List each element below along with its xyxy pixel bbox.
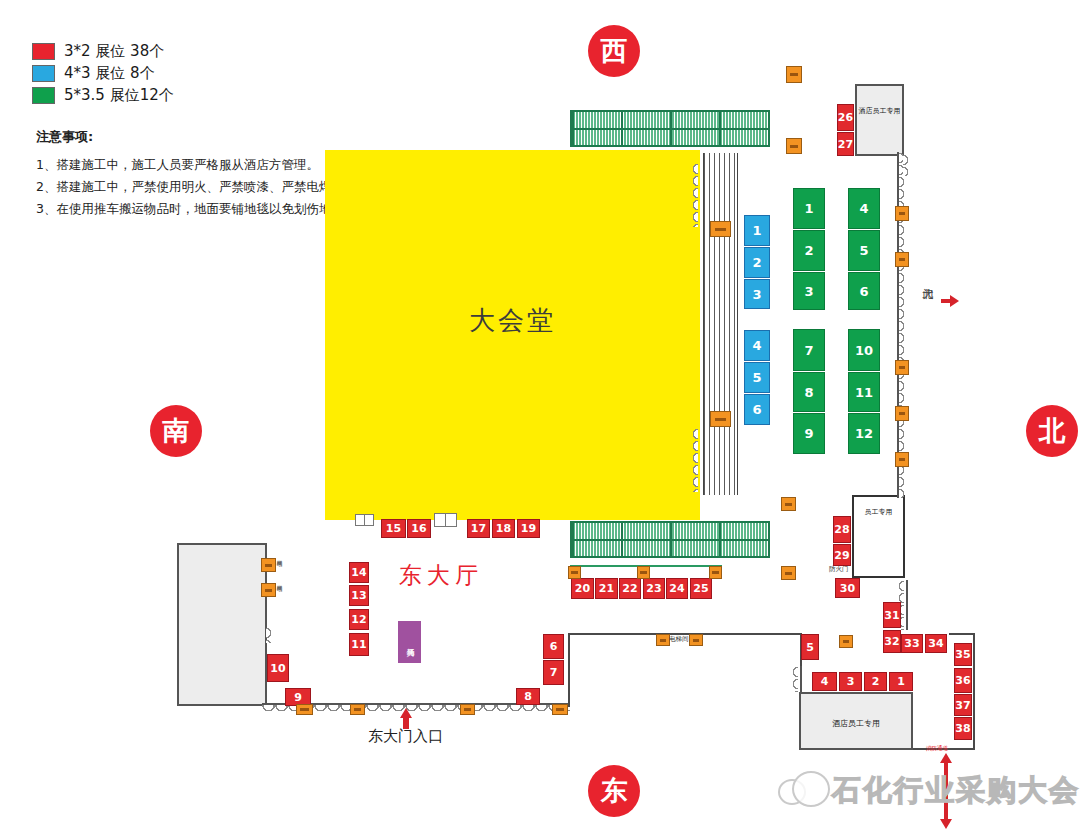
compass-north: 北 bbox=[1026, 405, 1078, 457]
cloud-icon bbox=[792, 771, 830, 807]
orange-marker-14 bbox=[709, 566, 722, 579]
booth-red-26: 26 bbox=[837, 104, 854, 131]
booth-red-5: 5 bbox=[801, 634, 819, 660]
booth-red-15: 15 bbox=[381, 519, 406, 538]
orange-marker-23 bbox=[552, 704, 568, 715]
booth-red-24: 24 bbox=[666, 578, 688, 599]
booth-red-16: 16 bbox=[407, 519, 431, 538]
booth-blue-4: 4 bbox=[744, 330, 770, 361]
main-hall-label: 大会堂 bbox=[469, 303, 556, 338]
booth-red-4: 4 bbox=[812, 672, 837, 691]
booth-green-1: 1 bbox=[793, 188, 825, 229]
orange-marker-1 bbox=[786, 66, 802, 83]
booth-red-13: 13 bbox=[349, 585, 369, 606]
hotel-staff-room-bottom: 酒店员工专用 bbox=[799, 692, 913, 750]
booth-red-25: 25 bbox=[690, 578, 712, 599]
booth-red-36: 36 bbox=[954, 668, 972, 693]
booth-green-7: 7 bbox=[793, 329, 825, 371]
booth-red-35: 35 bbox=[954, 643, 972, 666]
orange-marker-10 bbox=[781, 497, 796, 511]
booth-red-2: 2 bbox=[864, 672, 887, 691]
east-entrance-arrow-head bbox=[400, 708, 412, 718]
door-arcs bbox=[903, 154, 913, 176]
hotel-staff-room-bottom-label: 酒店员工专用 bbox=[801, 718, 911, 729]
seating-strip-bottom bbox=[570, 521, 770, 558]
notes-line: 1、搭建施工中，施工人员要严格服从酒店方管理。 bbox=[36, 154, 369, 176]
booth-red-27: 27 bbox=[837, 132, 854, 156]
compass-east: 东 bbox=[588, 765, 640, 817]
booth-red-28: 28 bbox=[833, 516, 851, 543]
floor-plan: 3*2 展位 38个 4*3 展位 8个 5*3.5 展位12个 注意事项: 1… bbox=[0, 0, 1080, 839]
orange-marker-20 bbox=[296, 704, 313, 715]
booth-green-8: 8 bbox=[793, 372, 825, 412]
booth-red-29: 29 bbox=[833, 544, 851, 566]
notes-line: 3、在使用推车搬运物品时，地面要铺地毯以免划伤地面。 bbox=[36, 198, 369, 220]
fire-door-label: 防火门 bbox=[829, 565, 849, 574]
door-arcs bbox=[789, 666, 802, 692]
hotel-staff-room-top: 酒店员工专用 bbox=[855, 84, 904, 156]
booth-red-6: 6 bbox=[543, 634, 564, 659]
east-hall-label: 东大厅 bbox=[399, 560, 483, 591]
booth-blue-3: 3 bbox=[744, 279, 770, 309]
east-entrance-label: 东大门入口 bbox=[368, 727, 443, 746]
main-hall: 大会堂 bbox=[325, 150, 700, 520]
orange-marker-16 bbox=[689, 634, 703, 646]
booth-red-30: 30 bbox=[835, 578, 860, 598]
booth-red-19: 19 bbox=[517, 519, 540, 538]
orange-marker-2 bbox=[786, 138, 802, 154]
booth-red-21: 21 bbox=[595, 578, 618, 599]
north-gate-arrow bbox=[941, 299, 950, 303]
watermark: 石化行业采购大会 bbox=[778, 765, 1073, 820]
booth-red-22: 22 bbox=[619, 578, 641, 599]
orange-marker-4 bbox=[710, 411, 731, 427]
wall bbox=[949, 633, 975, 635]
booth-red-23: 23 bbox=[643, 578, 665, 599]
terracotta-display: 兵马俑 bbox=[398, 621, 421, 663]
booth-blue-5: 5 bbox=[744, 362, 770, 393]
passage-arrow-down bbox=[940, 819, 952, 829]
service-room-left bbox=[177, 543, 267, 706]
wall bbox=[568, 633, 570, 707]
orange-marker-17 bbox=[839, 635, 853, 648]
booth-red-8: 8 bbox=[516, 688, 540, 705]
notes: 注意事项: 1、搭建施工中，施工人员要严格服从酒店方管理。 2、搭建施工中，严禁… bbox=[36, 128, 369, 220]
compass-south: 南 bbox=[150, 405, 202, 457]
booth-green-5: 5 bbox=[848, 230, 880, 271]
elevator-label: 电梯间 bbox=[669, 635, 689, 644]
booth-red-3: 3 bbox=[839, 672, 862, 691]
staff-room-label: 员工专用 bbox=[854, 507, 903, 517]
booth-red-18: 18 bbox=[492, 519, 515, 538]
legend-label: 5*3.5 展位12个 bbox=[64, 86, 174, 105]
booth-green-11: 11 bbox=[848, 372, 880, 412]
orange-marker-15 bbox=[656, 634, 670, 646]
booth-red-33: 33 bbox=[901, 634, 923, 653]
booth-green-10: 10 bbox=[848, 329, 880, 371]
notes-line: 2、搭建施工中，严禁使用明火、严禁喷漆、严禁电焊操作。 bbox=[36, 176, 369, 198]
booth-red-10: 10 bbox=[267, 654, 289, 682]
fire-passage-label: 消防通道 bbox=[926, 745, 948, 752]
passage-arrow-up bbox=[940, 753, 952, 763]
orange-marker-5 bbox=[895, 206, 909, 221]
orange-marker-18 bbox=[261, 558, 276, 572]
legend-item-red: 3*2 展位 38个 bbox=[32, 42, 164, 60]
booth-red-38: 38 bbox=[954, 717, 972, 740]
booth-red-31: 31 bbox=[883, 602, 901, 628]
orange-marker-8 bbox=[895, 406, 909, 421]
orange-marker-9 bbox=[895, 452, 909, 467]
staff-room-right: 员工专用 bbox=[852, 495, 905, 578]
booth-red-32: 32 bbox=[883, 630, 901, 653]
red-booth-swatch bbox=[32, 43, 55, 60]
door-arcs bbox=[266, 627, 277, 643]
booth-blue-6: 6 bbox=[744, 394, 770, 425]
north-gate-arrow-head bbox=[950, 295, 959, 307]
booth-green-2: 2 bbox=[793, 230, 825, 271]
door-arcs bbox=[689, 428, 701, 492]
orange-marker-12 bbox=[568, 566, 581, 579]
orange-marker-11 bbox=[781, 566, 796, 580]
blue-booth-swatch bbox=[32, 65, 55, 82]
booth-red-14: 14 bbox=[349, 562, 369, 583]
hotel-staff-room-top-label: 酒店员工专用 bbox=[857, 106, 902, 117]
stage-wall-hatch bbox=[703, 153, 738, 495]
legend-label: 3*2 展位 38个 bbox=[64, 42, 164, 61]
watermark-text: 石化行业采购大会 bbox=[832, 771, 1080, 811]
wall bbox=[973, 633, 975, 750]
green-booth-swatch bbox=[32, 87, 55, 104]
booth-red-17: 17 bbox=[467, 519, 490, 538]
booth-red-20: 20 bbox=[571, 578, 594, 599]
booth-green-9: 9 bbox=[793, 413, 825, 454]
door-icon bbox=[364, 514, 374, 526]
notes-title: 注意事项: bbox=[36, 128, 369, 146]
booth-green-4: 4 bbox=[848, 188, 880, 229]
booth-green-3: 3 bbox=[793, 272, 825, 310]
orange-marker-13 bbox=[637, 566, 650, 579]
right-wall-seats bbox=[897, 152, 912, 498]
booth-blue-1: 1 bbox=[744, 215, 770, 246]
door-icon bbox=[445, 513, 457, 527]
booth-red-1: 1 bbox=[889, 672, 913, 691]
legend-item-blue: 4*3 展位 8个 bbox=[32, 64, 155, 82]
seating-strip-top bbox=[570, 110, 770, 147]
orange-marker-21 bbox=[350, 704, 365, 715]
booth-red-7: 7 bbox=[543, 660, 564, 685]
legend-item-green: 5*3.5 展位12个 bbox=[32, 86, 174, 104]
booth-red-34: 34 bbox=[925, 634, 947, 653]
booth-blue-2: 2 bbox=[744, 247, 770, 278]
door-arcs bbox=[689, 163, 701, 227]
booth-green-12: 12 bbox=[848, 413, 880, 454]
legend-label: 4*3 展位 8个 bbox=[64, 64, 155, 83]
booth-red-12: 12 bbox=[349, 609, 369, 630]
orange-marker-3 bbox=[710, 221, 731, 237]
compass-west: 西 bbox=[588, 25, 640, 77]
orange-marker-7 bbox=[895, 360, 909, 375]
orange-marker-22 bbox=[460, 704, 475, 715]
orange-marker-6 bbox=[895, 252, 909, 267]
orange-marker-19 bbox=[261, 583, 276, 597]
booth-green-6: 6 bbox=[848, 272, 880, 310]
booth-red-11: 11 bbox=[349, 633, 369, 656]
booth-red-37: 37 bbox=[954, 694, 972, 716]
